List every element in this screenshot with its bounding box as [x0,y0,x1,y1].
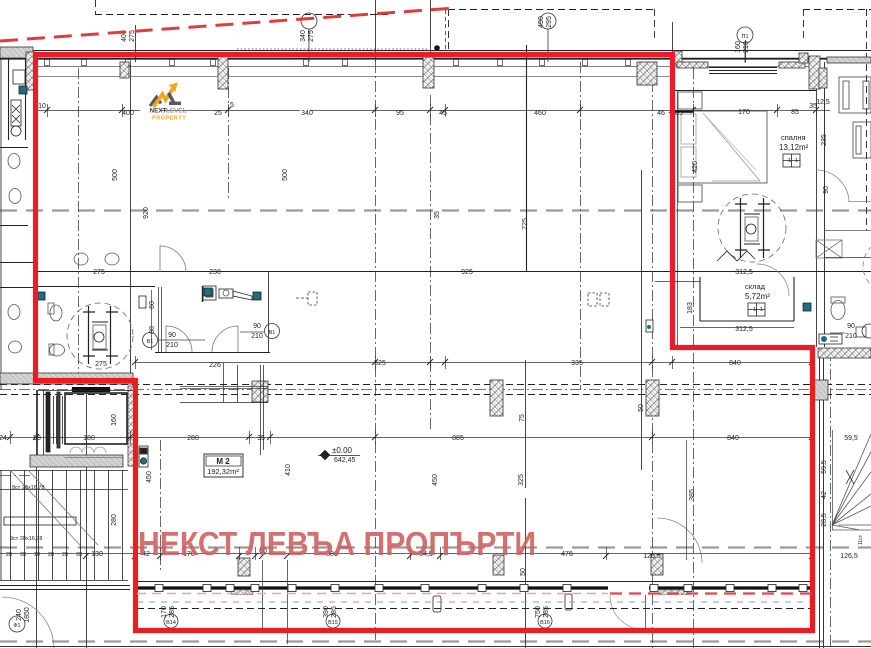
svg-text:238: 238 [209,269,221,276]
svg-text:В15: В15 [328,620,338,626]
svg-text:1850: 1850 [24,607,31,623]
svg-text:В16: В16 [540,620,550,626]
svg-text:28: 28 [76,552,82,558]
svg-text:126,5: 126,5 [643,553,661,560]
svg-text:28: 28 [6,552,12,558]
svg-text:160: 160 [111,414,118,426]
svg-text:840: 840 [727,435,739,442]
svg-text:45: 45 [439,110,447,117]
svg-text:±0.00: ±0.00 [332,446,353,455]
svg-text:210: 210 [251,333,263,340]
svg-text:925: 925 [461,269,473,276]
svg-text:400: 400 [122,110,134,117]
svg-text:58: 58 [33,435,41,442]
svg-text:13,12m²: 13,12m² [779,143,809,152]
svg-text:280: 280 [187,435,199,442]
svg-text:42: 42 [821,491,828,499]
svg-text:25: 25 [214,110,222,117]
svg-text:285: 285 [543,606,550,618]
svg-text:Ф1: Ф1 [13,623,20,629]
svg-text:130: 130 [91,551,103,558]
svg-text:340: 340 [301,110,313,117]
svg-text:460: 460 [534,110,546,117]
svg-text:1: 1 [760,307,763,313]
svg-text:П1: П1 [741,34,748,40]
svg-text:35: 35 [257,435,265,442]
svg-text:59,5: 59,5 [821,460,828,474]
svg-text:840: 840 [729,360,741,367]
svg-text:642,45: 642,45 [334,457,356,464]
svg-text:склад: склад [745,282,766,291]
svg-text:390: 390 [323,606,330,618]
svg-text:1: 1 [795,158,798,164]
svg-text:476: 476 [561,551,573,558]
svg-text:340: 340 [300,30,307,42]
svg-text:75: 75 [519,414,526,422]
svg-text:385: 385 [689,489,696,501]
svg-text:24: 24 [0,435,7,442]
svg-text:285: 285 [331,606,338,618]
svg-text:B1: B1 [147,339,154,345]
svg-text:1: 1 [753,307,756,313]
svg-text:920: 920 [143,207,150,219]
svg-text:35: 35 [434,211,441,219]
svg-text:28: 28 [34,552,40,558]
svg-text:500: 500 [282,169,289,181]
svg-text:170: 170 [738,109,750,116]
svg-text:11ст: 11ст [858,534,864,545]
svg-text:295: 295 [546,16,553,28]
svg-text:1: 1 [788,158,791,164]
svg-text:183: 183 [687,302,694,314]
svg-text:335: 335 [571,360,583,367]
svg-text:28,5: 28,5 [821,513,828,527]
svg-text:59,5: 59,5 [844,435,858,442]
svg-text:B1: B1 [269,330,276,336]
svg-text:95: 95 [396,110,404,117]
svg-text:126,5: 126,5 [840,553,858,560]
svg-text:85: 85 [791,109,799,116]
svg-text:28: 28 [20,552,26,558]
svg-text:312,5: 312,5 [735,326,753,333]
svg-text:170: 170 [161,606,168,618]
svg-text:В14: В14 [166,620,176,626]
svg-text:90: 90 [168,332,176,339]
svg-text:5,72m²: 5,72m² [745,292,770,301]
svg-text:500: 500 [112,169,119,181]
svg-text:28: 28 [48,552,54,558]
svg-text:НЕКСТ ЛЕВЪА ПРОПЪРТИ: НЕКСТ ЛЕВЪА ПРОПЪРТИ [138,525,536,562]
svg-text:235: 235 [821,134,828,146]
svg-text:226: 226 [209,362,221,369]
svg-text:240: 240 [16,609,23,621]
svg-text:885: 885 [452,435,464,442]
svg-text:60: 60 [149,301,156,309]
svg-text:8ст 28х16,78: 8ст 28х16,78 [12,485,45,491]
svg-text:420: 420 [692,161,699,173]
svg-text:50: 50 [638,404,645,412]
svg-text:спалня: спалня [781,133,806,142]
svg-text:192,32m²: 192,32m² [207,467,239,476]
svg-text:325: 325 [518,474,525,486]
svg-text:90: 90 [823,186,830,194]
svg-text:210: 210 [166,342,178,349]
svg-text:NEXT: NEXT [150,108,167,115]
svg-text:9ст 28х16,78: 9ст 28х16,78 [10,536,43,542]
svg-text:160: 160 [735,41,742,53]
svg-text:50: 50 [520,568,527,576]
svg-text:450: 450 [146,471,153,483]
svg-text:90: 90 [847,323,855,330]
svg-text:5: 5 [230,102,234,109]
svg-text:85: 85 [675,110,683,117]
svg-text:46: 46 [657,110,665,117]
svg-text:10: 10 [38,103,46,110]
svg-text:280: 280 [111,514,118,526]
svg-text:410: 410 [285,464,292,476]
svg-text:285: 285 [169,606,176,618]
svg-text:725: 725 [522,218,529,230]
svg-text:M 2: M 2 [216,457,230,466]
svg-text:12,5: 12,5 [816,99,830,106]
svg-text:28: 28 [62,552,68,558]
svg-text:275: 275 [95,361,107,368]
svg-text:525: 525 [374,360,386,367]
svg-text:180: 180 [83,435,95,442]
svg-text:90: 90 [253,323,261,330]
svg-text:312,5: 312,5 [735,269,753,276]
svg-text:210: 210 [845,333,857,340]
svg-text:750: 750 [535,606,542,618]
svg-text:LEVEL: LEVEL [166,108,187,115]
svg-text:PROPERTY: PROPERTY [152,116,186,122]
svg-text:275: 275 [93,269,105,276]
svg-text:450: 450 [432,474,439,486]
